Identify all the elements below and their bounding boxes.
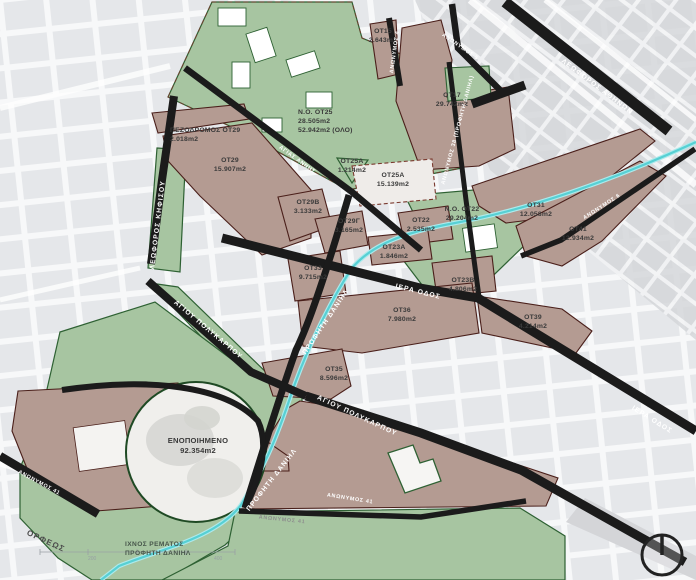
stream-trace-line1: ΙΧΝΟΣ ΡΕΜΑΤΟΣ [125,541,191,550]
parcel-name: ΕΝΟΠΟΙΗΜΕΝΟ [168,436,228,446]
parcel-area: 7.980m2 [388,316,416,325]
parcel-name: ΟΤ31 [520,202,552,211]
parcel-name: ΟΤ29 [214,157,246,166]
parcel-label-ot25a: ΟΤ25Α 15.139m2 [377,172,409,190]
parcel-area: 29.204m2 [445,215,480,224]
stream-trace-line2: ΠΡΟΦΗΤΗ ΔΑΝΙΗΛ [125,550,191,559]
parcel-label-ot29b: ΟΤ29Β 3.133m2 [294,199,322,217]
parcel-area: 92.354m2 [168,446,228,456]
parcel-name: ΟΤ41 [562,226,594,235]
north-compass-icon [642,534,682,575]
parcel-label-ot29: ΟΤ29 15.907m2 [214,157,246,175]
parcel-area: 1.846m2 [380,253,408,262]
parcel-name: ΟΤ25Α [338,158,366,167]
parcel-area: 4.214m2 [519,323,547,332]
parcel-label-ot35: ΟΤ35 8.596m2 [320,366,348,384]
parcel-name: ΟΤ39 [519,314,547,323]
parcel-area: 2.535m2 [407,226,435,235]
parcel-name: ΟΤ25Α [377,172,409,181]
parcel-label-ot36: ΟΤ36 7.980m2 [388,307,416,325]
parcel-name: ΟΤ22 [407,217,435,226]
parcel-label-ot29g: ΟΤ29Γ 3.165m2 [335,218,363,236]
parcel-area: 12.934m2 [562,235,594,244]
parcel-area: 3.165m2 [335,227,363,236]
parcel-label-no-ot22: Ν.Ο. ΟΤ22 29.204m2 [445,206,480,224]
parcel-area: 3.133m2 [294,208,322,217]
parcel-label-ot23b: ΟΤ23Β 4.806m2 [449,277,477,295]
parcel-label-enopoiimeno: ΕΝΟΠΟΙΗΜΕΝΟ 92.354m2 [168,436,228,456]
parcel-name: ΟΤ33 [299,265,327,274]
parcel-area: 1.214m2 [338,167,366,176]
urban-plan-map: ΟΤ15 2.643m2 ΟΤ17 29.742m2 ΠΕΖΟΔΡΟΜΟΣ ΟΤ… [0,0,696,580]
parcel-name: ΟΤ29Β [294,199,322,208]
parcel-area: 2.018m2 [170,136,240,145]
parcel-area: 8.596m2 [320,375,348,384]
parcel-label-no-ot25: Ν.Ο. ΟΤ25 28.505m2 52.942m2 (ΟΛΟ) [298,109,353,135]
parcel-label-ot39: ΟΤ39 4.214m2 [519,314,547,332]
parcel-name: ΟΤ23Α [380,244,408,253]
parcel-label-ot25a-small: ΟΤ25Α 1.214m2 [338,158,366,176]
parcel-label-ot33: ΟΤ33 9.715m2 [299,265,327,283]
parcel-area: 12.058m2 [520,211,552,220]
parcel-name: ΟΤ15 [369,28,397,37]
parcel-area: 15.907m2 [214,166,246,175]
parcel-name: ΟΤ23Β [449,277,477,286]
parcel-label-ot31: ΟΤ31 12.058m2 [520,202,552,220]
parcel-area: 15.139m2 [377,181,409,190]
parcel-label-ot41: ΟΤ41 12.934m2 [562,226,594,244]
parcel-label-pezodromos-ot29: ΠΕΖΟΔΡΟΜΟΣ ΟΤ29 2.018m2 [170,127,240,145]
parcel-name: ΟΤ29Γ [335,218,363,227]
parcel-area: 4.806m2 [449,286,477,295]
scale-label-400: 400 [214,556,222,562]
parcel-name: ΠΕΖΟΔΡΟΜΟΣ ΟΤ29 [170,127,240,136]
parcel-area: 9.715m2 [299,274,327,283]
parcel-area-total: 52.942m2 (ΟΛΟ) [298,127,353,136]
parcel-name: Ν.Ο. ΟΤ25 [298,109,353,118]
parcel-name: Ν.Ο. ΟΤ22 [445,206,480,215]
parcel-name: ΟΤ36 [388,307,416,316]
parcel-label-ot23a: ΟΤ23Α 1.846m2 [380,244,408,262]
scale-label-200: 200 [88,556,96,562]
parcel-label-ot22: ΟΤ22 2.535m2 [407,217,435,235]
parcel-name: ΟΤ35 [320,366,348,375]
parcel-area: 28.505m2 [298,118,353,127]
stream-trace-annotation: ΙΧΝΟΣ ΡΕΜΑΤΟΣ ΠΡΟΦΗΤΗ ΔΑΝΙΗΛ [125,541,191,559]
